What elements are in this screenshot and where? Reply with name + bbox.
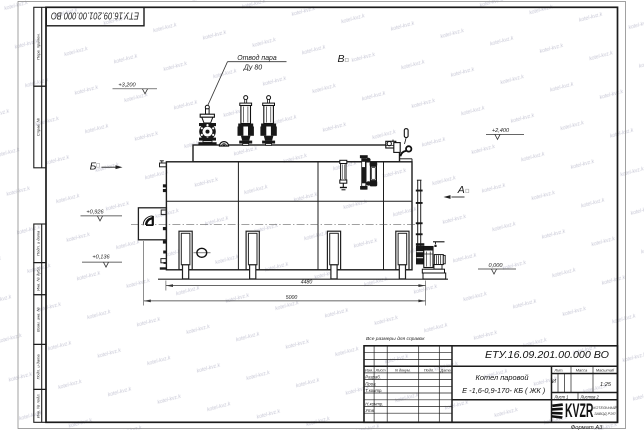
svg-text:Б: Б: [90, 161, 97, 173]
svg-text:+2,400: +2,400: [492, 128, 510, 134]
svg-text:Подп.: Подп.: [424, 367, 434, 372]
svg-text:Масса: Масса: [576, 368, 588, 373]
svg-text:Е -1,6-0,9-170- КБ ( ЖК ): Е -1,6-0,9-170- КБ ( ЖК ): [462, 386, 545, 395]
svg-text:+3,200: +3,200: [118, 83, 136, 89]
svg-text:5000: 5000: [286, 295, 298, 301]
svg-text:Изм.: Изм.: [365, 367, 373, 372]
svg-text:Котел паровой: Котел паровой: [475, 373, 528, 382]
svg-text:Все размеры для справок: Все размеры для справок: [366, 336, 425, 342]
svg-text:Инв. № подл.: Инв. № подл.: [35, 393, 40, 418]
svg-text:Листов 2: Листов 2: [580, 395, 600, 400]
svg-text:N докум.: N докум.: [395, 367, 411, 372]
svg-text:KVZR: KVZR: [565, 401, 594, 422]
svg-text:Н.контр.: Н.контр.: [365, 402, 383, 407]
svg-text:Формат А3: Формат А3: [571, 425, 603, 430]
svg-text:Масштаб: Масштаб: [596, 368, 615, 373]
svg-text:КОТЕЛЬНЫЙ: КОТЕЛЬНЫЙ: [593, 406, 617, 410]
svg-text:Справ. №: Справ. №: [35, 117, 40, 136]
svg-text:Перв. примен.: Перв. примен.: [35, 33, 40, 60]
svg-text:Дата: Дата: [439, 367, 451, 372]
svg-text:Пров.: Пров.: [365, 381, 376, 386]
svg-text:Инв. № дубл.: Инв. № дубл.: [35, 266, 40, 291]
svg-text:Т.контр.: Т.контр.: [365, 388, 382, 393]
svg-text:А: А: [457, 184, 465, 196]
svg-text:Утв.: Утв.: [365, 408, 375, 413]
svg-text:Взам. инв. №: Взам. инв. №: [35, 306, 40, 331]
svg-text:ЕТУ.16.09.201.00.000 ВО: ЕТУ.16.09.201.00.000 ВО: [485, 349, 609, 361]
svg-text:ЗАВОД РЭП: ЗАВОД РЭП: [594, 412, 615, 416]
svg-text:4480: 4480: [301, 280, 313, 286]
svg-text:И: И: [552, 379, 556, 385]
svg-text:Лист: Лист: [375, 367, 387, 372]
svg-text:ЕТУ.16.09.201.00.000 ВО: ЕТУ.16.09.201.00.000 ВО: [51, 10, 139, 22]
svg-text:+0,926: +0,926: [86, 209, 104, 215]
svg-text:+0,136: +0,136: [92, 255, 110, 261]
svg-text:1:25: 1:25: [600, 382, 612, 388]
svg-text:Ду 80: Ду 80: [243, 65, 262, 72]
svg-text:Подп. и дата: Подп. и дата: [35, 230, 40, 256]
svg-text:0,000: 0,000: [489, 263, 504, 269]
svg-text:Лист 1: Лист 1: [554, 395, 569, 400]
svg-text:В: В: [337, 53, 344, 65]
svg-text:Лит.: Лит.: [553, 368, 563, 373]
svg-text:Отвод пара: Отвод пара: [237, 54, 277, 62]
svg-text:Подп. и дата: Подп. и дата: [35, 354, 40, 380]
svg-text:Разраб.: Разраб.: [365, 375, 381, 380]
